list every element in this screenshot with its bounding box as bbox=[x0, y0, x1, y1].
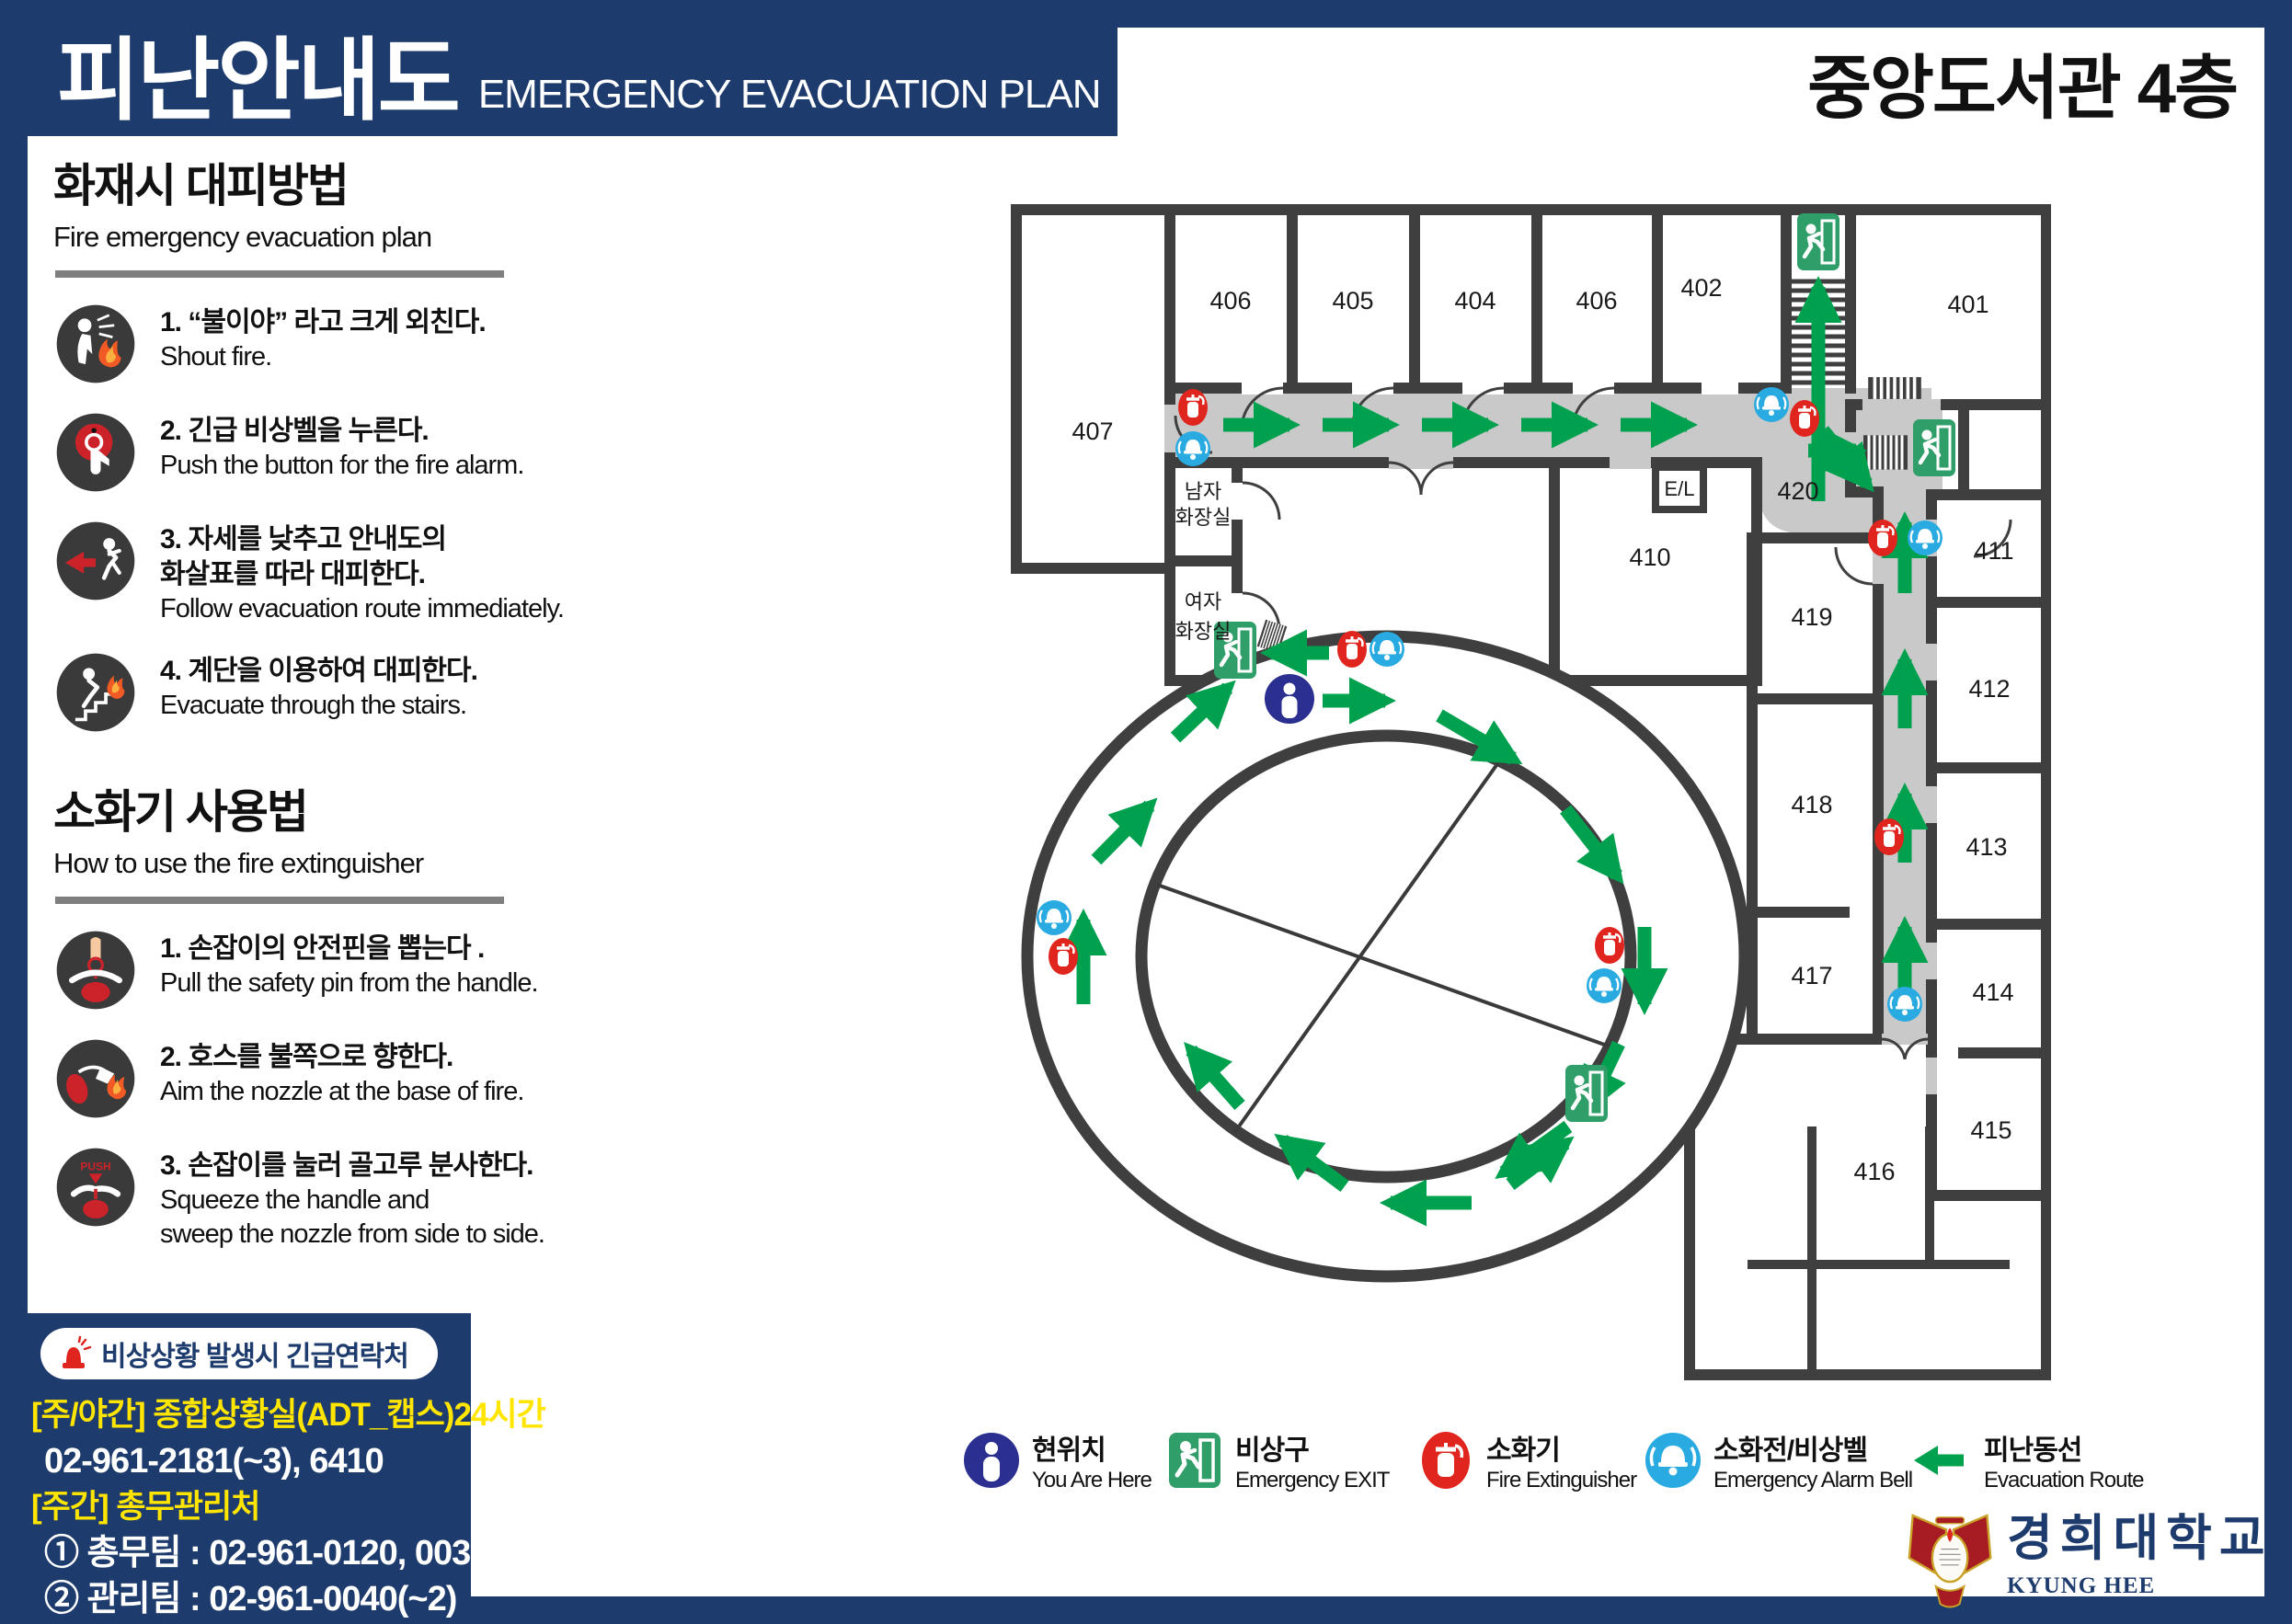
step-text-en: Push the button for the fire alarm. bbox=[160, 449, 523, 483]
women-restroom-label: 화장실 bbox=[1175, 620, 1232, 643]
divider bbox=[55, 897, 504, 904]
fire-step-3-text: 3. 자세를 낮추고 안내도의 화살표를 따라 대피한다. Follow eva… bbox=[160, 519, 564, 626]
emergency-exit-icon bbox=[1913, 419, 1955, 476]
contact-line: [주간] 총무관리처 bbox=[31, 1484, 464, 1530]
fire-step-4: 4. 계단을 이용하여 대피한다. Evacuate through the s… bbox=[53, 650, 708, 735]
university-name-ko: 경희대학교 bbox=[2007, 1497, 2292, 1570]
legend-label-ko: 소화전/비상벨 bbox=[1713, 1427, 1912, 1468]
svg-text:PUSH: PUSH bbox=[80, 1161, 110, 1173]
evacuation-plan-poster: 피난안내도 EMERGENCY EVACUATION PLAN 중앙도서관 4층… bbox=[0, 0, 2292, 1624]
step-text-en: Squeeze the handle and bbox=[160, 1184, 544, 1218]
step-text-en: Follow evacuation route immediately. bbox=[160, 592, 564, 626]
room-label: 413 bbox=[1965, 833, 2007, 861]
squeeze-handle-icon: PUSH bbox=[53, 1145, 138, 1229]
you-are-here-icon bbox=[1265, 674, 1314, 724]
evacuation-route-arrow bbox=[1907, 1431, 1973, 1490]
legend-alarm-bell: 소화전/비상벨Emergency Alarm Bell bbox=[1644, 1427, 1912, 1493]
contact-title: 비상상황 발생시 긴급연락처 bbox=[101, 1333, 408, 1374]
room-label: 411 bbox=[1974, 537, 2013, 565]
contact-line: 02-961-2181(~3), 6410 bbox=[31, 1438, 464, 1484]
divider bbox=[55, 270, 504, 278]
extinguisher-step-2-text: 2. 호스를 불쪽으로 향한다. Aim the nozzle at the b… bbox=[160, 1036, 523, 1109]
fire-section-subtitle: Fire emergency evacuation plan bbox=[53, 221, 708, 254]
follow-route-icon bbox=[53, 519, 138, 603]
room-label: 412 bbox=[1968, 675, 2010, 703]
women-restroom-label: 여자 bbox=[1185, 590, 1221, 613]
contact-line: ① 총무팀 : 02-961-0120, 0035 bbox=[31, 1530, 464, 1576]
fire-extinguisher-icon bbox=[1178, 389, 1208, 426]
university-crest bbox=[1906, 1505, 1994, 1618]
room-label: 404 bbox=[1454, 287, 1496, 315]
step-text-en: Shout fire. bbox=[160, 340, 486, 374]
fire-extinguisher-icon bbox=[1049, 938, 1078, 975]
university-name-en: KYUNG HEE UNIVERSITY bbox=[2007, 1573, 2292, 1624]
men-restroom-label: 남자 bbox=[1185, 480, 1221, 503]
alarm-bell-icon bbox=[1587, 968, 1622, 1003]
alarm-bell-icon bbox=[1644, 1431, 1702, 1490]
floor-plan: 407 406 405 404 406 402 401 410 420 411 … bbox=[966, 129, 2051, 1416]
legend-label-ko: 현위치 bbox=[1032, 1427, 1152, 1468]
emergency-exit-icon bbox=[1797, 213, 1839, 270]
fire-section: 화재시 대피방법 Fire emergency evacuation plan … bbox=[53, 149, 708, 735]
fire-step-2-text: 2. 긴급 비상벨을 누른다. Push the button for the … bbox=[160, 410, 523, 483]
contact-title-pill: 비상상황 발생시 긴급연락처 bbox=[40, 1328, 438, 1379]
contact-line: ② 관리팀 : 02-961-0040(~2) bbox=[31, 1576, 464, 1622]
room-label: 407 bbox=[1072, 417, 1113, 445]
step-text-en: Evacuate through the stairs. bbox=[160, 689, 477, 723]
step-text-ko: 1. “불이야” 라고 크게 외친다. bbox=[160, 305, 486, 340]
step-text-en: sweep the nozzle from side to side. bbox=[160, 1218, 544, 1252]
legend-emergency-exit: 비상구Emergency EXIT bbox=[1165, 1427, 1389, 1493]
contact-lines: [주/야간] 종합상황실(ADT_캡스)24시간 02-961-2181(~3)… bbox=[31, 1392, 464, 1624]
room-label: 406 bbox=[1209, 287, 1251, 315]
step-text-ko: 3. 자세를 낮추고 안내도의 bbox=[160, 522, 564, 557]
legend-label-en: Evacuation Route bbox=[1984, 1468, 2143, 1493]
extinguisher-step-2: 2. 호스를 불쪽으로 향한다. Aim the nozzle at the b… bbox=[53, 1036, 708, 1121]
room-label: 402 bbox=[1680, 274, 1722, 302]
fire-extinguisher-icon bbox=[1790, 400, 1819, 437]
fire-extinguisher-icon bbox=[1868, 520, 1897, 556]
legend-label-en: Emergency Alarm Bell bbox=[1713, 1468, 1912, 1493]
university-signature: 경희대학교 KYUNG HEE UNIVERSITY bbox=[1906, 1497, 2292, 1624]
room-label: 415 bbox=[1970, 1116, 2011, 1144]
location-title: 중앙도서관 4층 bbox=[1807, 31, 2237, 132]
extinguisher-step-3-text: 3. 손잡이를 눌러 골고루 분사한다. Squeeze the handle … bbox=[160, 1145, 544, 1252]
university-name: 경희대학교 KYUNG HEE UNIVERSITY bbox=[2007, 1497, 2292, 1624]
fire-step-1-text: 1. “불이야” 라고 크게 외친다. Shout fire. bbox=[160, 302, 486, 374]
step-text-ko: 2. 긴급 비상벨을 누른다. bbox=[160, 414, 523, 449]
step-text-ko: 2. 호스를 불쪽으로 향한다. bbox=[160, 1040, 523, 1075]
location-title-box: 중앙도서관 4층 bbox=[1117, 28, 2264, 136]
page-title: 피난안내도 bbox=[57, 38, 458, 123]
legend-label-en: Emergency EXIT bbox=[1235, 1468, 1389, 1493]
page-title-en: EMERGENCY EVACUATION PLAN bbox=[478, 72, 1101, 118]
fire-extinguisher-icon bbox=[1595, 927, 1624, 964]
room-label: 410 bbox=[1629, 543, 1670, 571]
legend-label-ko: 피난동선 bbox=[1984, 1427, 2143, 1468]
extinguisher-step-1: 1. 손잡이의 안전핀을 뽑는다 . Pull the safety pin f… bbox=[53, 928, 708, 1012]
room-label: 406 bbox=[1576, 287, 1617, 315]
room-label: 418 bbox=[1791, 791, 1832, 818]
fire-extinguisher-icon bbox=[1874, 818, 1904, 855]
elevator-label: E/L bbox=[1664, 477, 1694, 500]
step-text-ko: 4. 계단을 이용하여 대피한다. bbox=[160, 654, 477, 689]
alarm-button-icon bbox=[53, 410, 138, 495]
legend-label-ko: 소화기 bbox=[1486, 1427, 1636, 1468]
fire-step-4-text: 4. 계단을 이용하여 대피한다. Evacuate through the s… bbox=[160, 650, 477, 723]
fire-step-2: 2. 긴급 비상벨을 누른다. Push the button for the … bbox=[53, 410, 708, 495]
fire-extinguisher-icon bbox=[1337, 631, 1367, 668]
room-label: 405 bbox=[1332, 287, 1373, 315]
extinguisher-section: 소화기 사용법 How to use the fire extinguisher… bbox=[53, 775, 708, 1252]
extinguisher-step-1-text: 1. 손잡이의 안전핀을 뽑는다 . Pull the safety pin f… bbox=[160, 928, 538, 1001]
pull-pin-icon bbox=[53, 928, 138, 1012]
alarm-bell-icon bbox=[1754, 387, 1789, 422]
fire-extinguisher-icon bbox=[1416, 1431, 1475, 1490]
rotunda bbox=[1027, 636, 1745, 1276]
instructions-sidebar: 화재시 대피방법 Fire emergency evacuation plan … bbox=[28, 136, 708, 1313]
room-label: 420 bbox=[1777, 477, 1818, 505]
emergency-contact-panel: 비상상황 발생시 긴급연락처 [주/야간] 종합상황실(ADT_캡스)24시간 … bbox=[0, 1313, 471, 1624]
step-text-en: Aim the nozzle at the base of fire. bbox=[160, 1075, 523, 1109]
legend-label-en: You Are Here bbox=[1032, 1468, 1152, 1493]
alarm-bell-icon bbox=[1037, 900, 1072, 935]
aim-nozzle-icon bbox=[53, 1036, 138, 1121]
emergency-exit-icon bbox=[1565, 1065, 1608, 1122]
step-text-ko: 3. 손잡이를 눌러 골고루 분사한다. bbox=[160, 1149, 544, 1184]
contact-line: [주/야간] 종합상황실(ADT_캡스)24시간 bbox=[31, 1392, 464, 1438]
room-label: 414 bbox=[1972, 978, 2013, 1006]
step-text-ko: 1. 손잡이의 안전핀을 뽑는다 . bbox=[160, 932, 538, 966]
extinguisher-section-subtitle: How to use the fire extinguisher bbox=[53, 847, 708, 880]
legend-label-ko: 비상구 bbox=[1235, 1427, 1389, 1468]
room-label: 401 bbox=[1947, 291, 1988, 318]
stairs-icon bbox=[1863, 435, 1908, 469]
alarm-bell-icon bbox=[1175, 431, 1210, 466]
stairs-evacuation-icon bbox=[53, 650, 138, 735]
fire-section-title: 화재시 대피방법 bbox=[53, 149, 708, 215]
alarm-bell-icon bbox=[1369, 632, 1404, 667]
room-label: 416 bbox=[1853, 1158, 1895, 1185]
emergency-exit-icon bbox=[1165, 1431, 1224, 1490]
header: 피난안내도 EMERGENCY EVACUATION PLAN bbox=[0, 0, 1117, 136]
shout-fire-icon bbox=[53, 302, 138, 386]
legend-you-are-here: 현위치You Are Here bbox=[962, 1427, 1152, 1493]
legend-evacuation-route: 피난동선Evacuation Route bbox=[1907, 1427, 2143, 1493]
alarm-bell-icon bbox=[1887, 987, 1922, 1022]
room-label: 419 bbox=[1791, 603, 1832, 631]
stairs-icon bbox=[1868, 377, 1921, 399]
room-label: 417 bbox=[1791, 962, 1832, 989]
alarm-bell-icon bbox=[1908, 520, 1942, 555]
legend-label-en: Fire Extinguisher bbox=[1486, 1468, 1636, 1493]
step-text-ko: 화살표를 따라 대피한다. bbox=[160, 557, 564, 592]
siren-icon bbox=[55, 1335, 92, 1372]
legend-fire-extinguisher: 소화기Fire Extinguisher bbox=[1416, 1427, 1636, 1493]
step-text-en: Pull the safety pin from the handle. bbox=[160, 966, 538, 1001]
extinguisher-section-title: 소화기 사용법 bbox=[53, 775, 708, 841]
extinguisher-step-3: PUSH 3. 손잡이를 눌러 골고루 분사한다. Squeeze the ha… bbox=[53, 1145, 708, 1252]
fire-step-1: 1. “불이야” 라고 크게 외친다. Shout fire. bbox=[53, 302, 708, 386]
you-are-here-icon bbox=[962, 1431, 1021, 1490]
men-restroom-label: 화장실 bbox=[1175, 506, 1232, 529]
fire-step-3: 3. 자세를 낮추고 안내도의 화살표를 따라 대피한다. Follow eva… bbox=[53, 519, 708, 626]
